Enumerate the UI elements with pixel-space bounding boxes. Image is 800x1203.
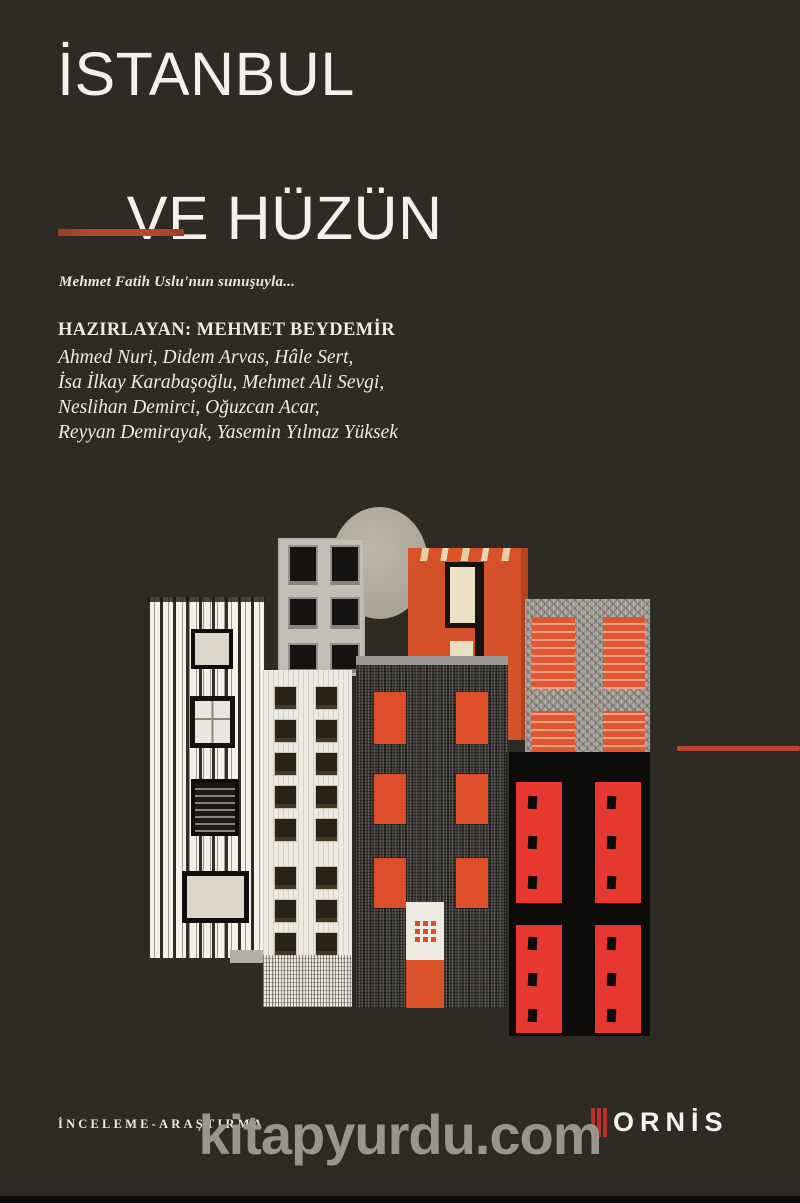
contributors-line: Reyyan Demirayak, Yasemin Yılmaz Yüksek	[58, 420, 398, 445]
contributors-line: Neslihan Demirci, Oğuzcan Acar,	[58, 395, 398, 420]
credits-block: HAZIRLAYAN: MEHMET BEYDEMİR Ahmed Nuri, …	[58, 320, 398, 445]
building-door	[406, 902, 444, 1008]
title-line-2: VE HÜZÜN	[127, 184, 443, 252]
book-title: İSTANBUL VE HÜZÜN	[57, 38, 443, 254]
building-dark-speckled	[356, 656, 508, 1008]
contributors-line: Ahmed Nuri, Didem Arvas, Hâle Sert,	[58, 345, 398, 370]
bottom-edge-bar	[0, 1196, 800, 1203]
building-base-texture	[263, 955, 352, 1007]
right-accent-line	[677, 746, 800, 751]
building-striped-white	[147, 597, 265, 958]
presenter-note: Mehmet Fatih Uslu'nun sunuşuyla...	[59, 274, 295, 291]
building-white-rows	[263, 670, 352, 1007]
kitapyurdu-watermark: kitapyurdu.com	[199, 1102, 602, 1167]
prepared-by: HAZIRLAYAN: MEHMET BEYDEMİR	[58, 320, 398, 341]
contributors-line: İsa İlkay Karabaşoğlu, Mehmet Ali Sevgi,	[58, 370, 398, 395]
publisher-name: ORNİS	[613, 1107, 729, 1138]
title-underline-rule	[58, 229, 184, 236]
door-dot-grid	[415, 921, 436, 942]
building-black-red-windows	[506, 752, 650, 1036]
roof-cap	[356, 656, 508, 665]
building-grey-textured	[525, 599, 650, 755]
title-line-1: İSTANBUL	[57, 40, 355, 108]
torn-paper-edge	[408, 548, 521, 561]
publisher-logo: ORNİS	[591, 1107, 729, 1138]
book-cover: İSTANBUL VE HÜZÜN Mehmet Fatih Uslu'nun …	[0, 0, 800, 1203]
building-grey-top	[278, 538, 365, 676]
